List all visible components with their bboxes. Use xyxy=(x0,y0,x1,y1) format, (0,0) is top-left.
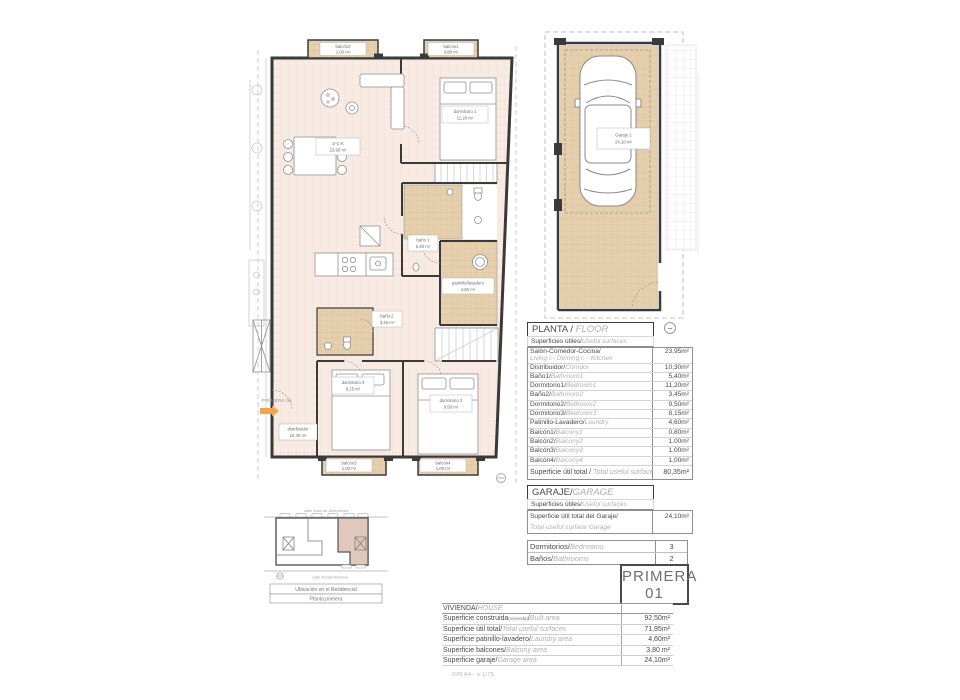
row-label-en: Laundry xyxy=(585,419,609,426)
row-label: Dormitorio2/Bedroom2 xyxy=(528,401,652,409)
table-row: Superficie útil total del Garaje/ Total … xyxy=(528,511,692,533)
row-label-en: Total useful surfaces xyxy=(502,626,566,633)
row-label-en: Built area xyxy=(530,615,560,622)
room-area: 8,15 m² xyxy=(346,387,361,392)
row-label-es: Balcón2/ xyxy=(530,438,556,445)
table-row: Salón-Comedor-Cocina/ Living r.- Dinning… xyxy=(528,348,692,363)
row-label-en: Bedrooms xyxy=(570,542,604,551)
label-balcon3: balcón3 1,00 m² xyxy=(326,459,372,472)
room-name: baño 1 xyxy=(416,238,430,243)
room-name: balcón2 xyxy=(335,44,351,49)
bath1-tile xyxy=(404,185,462,239)
scale-note: DIN A4 - e 1/75 xyxy=(452,672,494,678)
garaje-header-en: GARAGE xyxy=(573,487,614,498)
row-value: 92,50m² xyxy=(621,614,673,623)
room-name: balcón4 xyxy=(435,461,451,466)
row-label-es: Dormitorio1/ xyxy=(530,382,566,389)
room-area: 0,80 m² xyxy=(444,50,459,55)
table-row: Superficie útil total/Total useful surfa… xyxy=(442,625,673,635)
row-value xyxy=(621,604,673,613)
row-label: Dormitorios/Bedrooms xyxy=(528,541,655,552)
row-label: Distribuidor/Corridor xyxy=(528,364,652,372)
row-label-es: Balcón1/ xyxy=(530,429,556,436)
map-section-symbol xyxy=(277,573,283,579)
garaje-sub-en: Useful surfaces xyxy=(582,501,627,508)
planta-sub-en: Useful surfaces xyxy=(582,338,627,345)
location-map: calle Juan de Alhendines calle Tomás Bor… xyxy=(256,505,396,605)
room-area: 23,95 m² xyxy=(330,148,348,153)
unit-badge: PRIMERA 01 xyxy=(620,564,689,605)
row-value: 0,80m² xyxy=(652,429,692,437)
stairwell-top xyxy=(435,163,497,183)
apartment-floor-plan: S-C-K 23,95 m² dormitorio 1 11,20 m² bañ… xyxy=(248,20,520,485)
row-label: Superficie balcones/Balcony area xyxy=(442,646,621,655)
room-area: 1,00 m² xyxy=(436,466,451,471)
row-label-es: Superficie útil total/ xyxy=(443,626,502,633)
table-row: Baños/Bathrooms 2 xyxy=(528,552,687,564)
label-balcon1: balcón1 0,80 m² xyxy=(428,43,474,56)
street-balcony-ticks-top xyxy=(280,514,368,518)
row-label: Balcón2/Balcony2 xyxy=(528,438,652,446)
row-label: Superficie útil total / Total useful sur… xyxy=(528,466,652,479)
room-area: 3,45 m² xyxy=(380,320,395,325)
table-row: Superficie balcones/Balcony area 3,80 m² xyxy=(442,646,673,656)
vivienda-summary-table: VIVIENDA/HOUSE Superficie construida(viv… xyxy=(442,603,673,666)
street-name-top: calle Juan de Alhendines xyxy=(304,508,348,513)
room-name: baño 2 xyxy=(380,314,394,319)
row-value: 11,20m² xyxy=(652,382,692,390)
row-label: Patinillo-Lavadero/Laundry xyxy=(528,419,652,427)
label-bano2: baño 2 3,45 m² xyxy=(372,311,402,327)
room-name: patinillo/lavadero xyxy=(452,281,485,286)
row-label: VIVIENDA/HOUSE xyxy=(442,604,621,613)
row-label-en: Bedroom3 xyxy=(566,410,596,417)
room-area: 11,20 m² xyxy=(457,116,474,121)
room-name: dormitorio 3 xyxy=(342,380,365,385)
car-mirror-left xyxy=(575,99,580,107)
garage-plan: Garaje 1 24,10 m² xyxy=(533,23,705,323)
room-area: 4,60 m² xyxy=(461,287,476,292)
row-label-es: Patinillo-Lavadero/ xyxy=(530,419,585,426)
plan-sheet-page: { "plan": { "entry_label": "PRIMERA 01",… xyxy=(0,0,960,700)
label-balcon2: balcón2 1,00 m² xyxy=(320,43,366,56)
unit-badge-line1: PRIMERA xyxy=(622,568,687,585)
row-label-en: Living r.- Dinning r. - Kitchen xyxy=(530,355,652,362)
table-header-row: VIVIENDA/HOUSE xyxy=(442,604,673,614)
stairwell-bottom xyxy=(435,328,498,361)
room-area: 1,00 m² xyxy=(336,50,351,55)
label-dorm1: dormitorio 1 11,20 m² xyxy=(442,106,488,123)
row-label-sub: (vivienda) xyxy=(508,616,528,621)
row-label-en: Balcony1 xyxy=(556,429,583,436)
vivienda-header-en: HOUSE xyxy=(478,605,503,612)
room-area: 1,00 m² xyxy=(342,466,357,471)
row-label-es: Salón-Comedor-Cocina/ xyxy=(530,348,652,355)
row-value: 3,80 m² xyxy=(621,646,673,655)
map-caption: Ubicación en el Residencial Planta prime… xyxy=(270,584,382,603)
garaje-header-es: GARAJE/ xyxy=(532,487,573,498)
rooms-count-table: Dormitorios/Bedrooms 3 Baños/Bathrooms 2 xyxy=(527,540,688,565)
washing-machine xyxy=(473,255,488,270)
garaje-sub-es: Superficies útiles/ xyxy=(531,501,582,508)
garaje-section-header: GARAJE/GARAGE xyxy=(527,485,654,500)
row-value: 4,60m² xyxy=(652,419,692,427)
row-value: 71,95m² xyxy=(621,625,673,634)
row-label-es: Superficie balcones/ xyxy=(443,647,506,654)
section-symbol xyxy=(497,474,506,483)
row-label: Baño2/Bathroom2 xyxy=(528,391,652,399)
row-value: 23,95m² xyxy=(652,348,692,363)
row-label-es: Superficie útil total del Garaje/ xyxy=(530,511,652,522)
row-label-es: Balcón3/ xyxy=(530,447,556,454)
row-label-en: Corridor xyxy=(565,364,589,371)
room-area: 5,40 m² xyxy=(416,244,431,249)
row-label: Dormitorio1/Bedroom1 xyxy=(528,382,652,390)
table-row: Superficie patinillo-lavadero/Laundry ar… xyxy=(442,635,673,645)
north-symbol-icon xyxy=(664,322,676,334)
row-label-en: Balcony3 xyxy=(556,447,583,454)
table-row: Dormitorio3/Bedroom3 8,15m² xyxy=(528,409,692,418)
row-label: Superficie útil total del Garaje/ Total … xyxy=(528,511,652,533)
row-label-en: Bedroom2 xyxy=(566,401,596,408)
label-patinillo: patinillo/lavadero 4,60 m² xyxy=(442,278,494,294)
room-name: balcón1 xyxy=(443,44,459,49)
row-label-es: Dormitorio3/ xyxy=(530,410,566,417)
garaje-surfaces-table: Superficie útil total del Garaje/ Total … xyxy=(527,510,693,534)
row-label-es: Superficie patinillo-lavadero/ xyxy=(443,636,531,643)
bed-dorm2 xyxy=(418,374,478,454)
row-label-en: Bathrooms xyxy=(553,554,589,563)
row-label-es: Distribuidor/ xyxy=(530,364,565,371)
row-value: 1,00m² xyxy=(652,438,692,446)
planta-subheader: Superficies útiles/Useful surfaces xyxy=(527,336,654,347)
label-distribuidor: distribuidor 10,30 m² xyxy=(279,424,317,440)
table-row: Dormitorio2/Bedroom2 9,50m² xyxy=(528,400,692,409)
table-row: Balcón3/Balcony3 1,00m² xyxy=(528,446,692,455)
table-row: Baño1/Bathroom1 5,40m² xyxy=(528,372,692,381)
table-row: Balcón1/Balcony1 0,80m² xyxy=(528,428,692,437)
row-value: 2 xyxy=(655,553,687,564)
row-value: 10,30m² xyxy=(652,364,692,372)
room-name: Garaje 1 xyxy=(615,133,632,138)
row-label: Superficie garaje/Garage area xyxy=(442,656,621,665)
planta-header-en: FLOOR xyxy=(576,324,609,335)
planta-section-header: PLANTA / FLOOR xyxy=(527,322,654,337)
row-label-es: Dormitorio2/ xyxy=(530,401,566,408)
row-label-es: Superficie útil total / xyxy=(530,469,593,476)
row-label-en: Balcony area xyxy=(506,647,547,654)
row-label-es: Baño1/ xyxy=(530,373,551,380)
row-value: 5,40m² xyxy=(652,373,692,381)
room-name: balcón3 xyxy=(341,461,357,466)
table-row: Dormitorios/Bedrooms 3 xyxy=(528,541,687,552)
map-caption-line2: Planta primera xyxy=(310,597,343,603)
room-area: 9,50 m² xyxy=(444,405,459,410)
table-row: Dormitorio1/Bedroom1 11,20m² xyxy=(528,381,692,390)
street-name-bottom: calle Tomás Bordoni xyxy=(312,575,348,580)
row-value: 3,45m² xyxy=(652,391,692,399)
row-label-en: Bedroom1 xyxy=(566,382,596,389)
row-label: Superficie construida(vivienda)/Built ar… xyxy=(442,614,621,623)
label-dorm3: dormitorio 3 8,15 m² xyxy=(332,377,374,394)
label-balcon4: balcón4 1,00 m² xyxy=(420,459,466,472)
row-value: 3 xyxy=(655,541,687,552)
row-label-en: Bathroom1 xyxy=(551,373,583,380)
row-value: 8,15m² xyxy=(652,410,692,418)
table-row: Superficie garaje/Garage area 24,10m² xyxy=(442,656,673,666)
row-label-es: Baños/ xyxy=(530,554,553,563)
row-label-en: Balcony2 xyxy=(556,438,583,445)
row-label-en: Laundry area xyxy=(531,636,572,643)
row-label-es: Dormitorios/ xyxy=(530,542,570,551)
row-label: Baño1/Bathroom1 xyxy=(528,373,652,381)
unit-badge-line2: 01 xyxy=(622,585,687,602)
row-label-es: Baño2/ xyxy=(530,391,551,398)
room-name: dormitorio 1 xyxy=(454,109,477,114)
room-area: 24,10 m² xyxy=(615,140,633,145)
row-value: 80,35m² xyxy=(652,466,692,479)
planta-surfaces-table: Salón-Comedor-Cocina/ Living r.- Dinning… xyxy=(527,347,693,480)
row-value: 1,00m² xyxy=(652,457,692,465)
room-name: S-C-K xyxy=(332,141,344,146)
row-label-es: Superficie garaje/ xyxy=(443,657,497,664)
row-label: Superficie útil total/Total useful surfa… xyxy=(442,625,621,634)
row-label: Balcón3/Balcony3 xyxy=(528,447,652,455)
planta-sub-es: Superficies útiles/ xyxy=(531,338,582,345)
row-label: Salón-Comedor-Cocina/ Living r.- Dinning… xyxy=(528,348,652,363)
entry-label: PRIMERA 01 xyxy=(262,398,292,403)
table-row: Distribuidor/Corridor 10,30m² xyxy=(528,363,692,372)
label-sck: S-C-K 23,95 m² xyxy=(316,138,360,155)
elevator-shaft xyxy=(253,320,270,372)
table-row: Balcón2/Balcony2 1,00m² xyxy=(528,437,692,446)
map-caption-line1: Ubicación en el Residencial xyxy=(295,587,356,593)
row-label-es: Superficie construida xyxy=(443,615,508,622)
label-bano1: baño 1 5,40 m² xyxy=(408,235,438,251)
row-label-en: Bathroom2 xyxy=(551,391,583,398)
row-label-es: Balcón4/ xyxy=(530,457,556,464)
row-label-en: Garage area xyxy=(497,657,536,664)
stairwell-grid xyxy=(666,45,696,250)
row-value: 24,10m² xyxy=(652,511,692,533)
table-row: Balcón4/Balcony4 1,00m² xyxy=(528,456,692,465)
garaje-subheader: Superficies útiles/Useful surfaces xyxy=(527,499,654,510)
row-label-en: Total useful surface xyxy=(593,469,652,476)
planta-header-es: PLANTA / xyxy=(532,324,576,335)
table-row: Patinillo-Lavadero/Laundry 4,60m² xyxy=(528,418,692,427)
row-label: Dormitorio3/Bedroom3 xyxy=(528,410,652,418)
row-label: Superficie patinillo-lavadero/Laundry ar… xyxy=(442,635,621,644)
room-name: dormitorio 2 xyxy=(440,398,463,403)
car-mirror-right xyxy=(636,99,641,107)
row-value: 24,10m² xyxy=(621,656,673,665)
vivienda-header-es: VIVIENDA/ xyxy=(443,605,478,612)
room-area: 10,30 m² xyxy=(290,433,308,438)
table-row: Superficie construida(vivienda)/Built ar… xyxy=(442,614,673,624)
room-name: distribuidor xyxy=(287,427,309,432)
table-total-row: Superficie útil total / Total useful sur… xyxy=(528,465,692,479)
label-garage: Garaje 1 24,10 m² xyxy=(597,128,650,149)
table-row: Baño2/Bathroom2 3,45m² xyxy=(528,390,692,399)
label-dorm2: dormitorio 2 9,50 m² xyxy=(430,395,472,412)
row-label-en: Balcony4 xyxy=(556,457,583,464)
row-label: Baños/Bathrooms xyxy=(528,553,655,564)
row-value: 1,00m² xyxy=(652,447,692,455)
row-label-en: Total useful surface Garage xyxy=(530,522,652,533)
row-value: 9,50m² xyxy=(652,401,692,409)
row-label: Balcón4/Balcony4 xyxy=(528,457,652,465)
row-value: 4,60m² xyxy=(621,635,673,644)
row-label: Balcón1/Balcony1 xyxy=(528,429,652,437)
